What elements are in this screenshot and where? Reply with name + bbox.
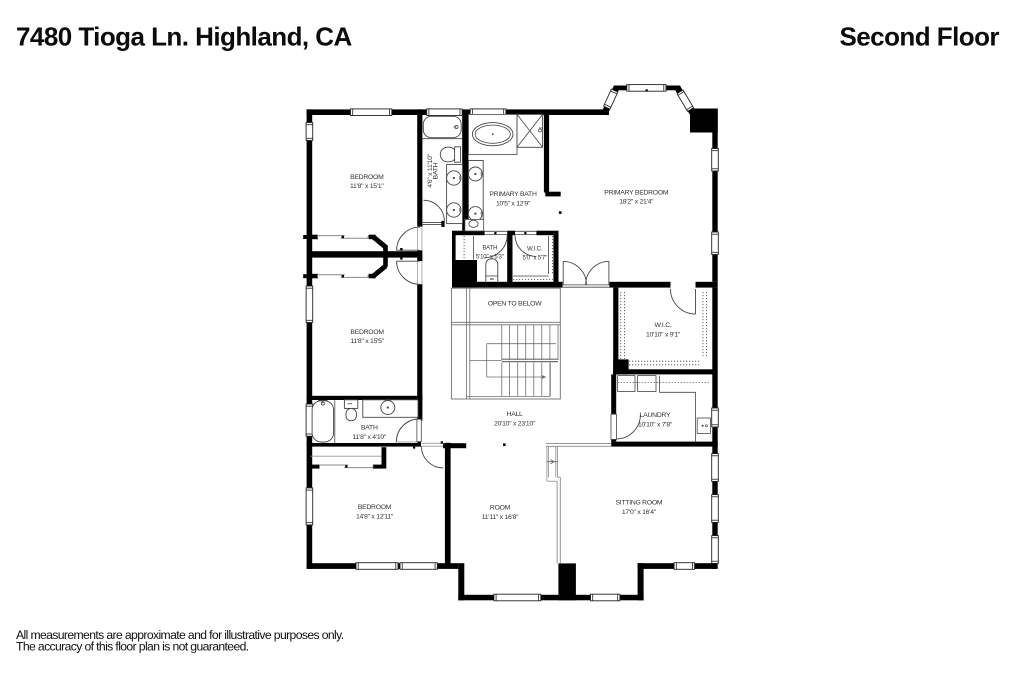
- svg-text:BATH: BATH: [482, 245, 497, 251]
- svg-text:BATH: BATH: [361, 425, 378, 432]
- svg-text:14'8" x 12'11": 14'8" x 12'11": [356, 513, 394, 520]
- svg-text:4'6" x 11'10": 4'6" x 11'10": [427, 153, 434, 187]
- svg-text:11'8" x 4'10": 11'8" x 4'10": [353, 434, 387, 441]
- svg-text:10'10" x 7'8": 10'10" x 7'8": [638, 422, 673, 429]
- svg-text:W.I.C.: W.I.C.: [654, 322, 671, 329]
- svg-text:BEDROOM: BEDROOM: [350, 329, 384, 336]
- svg-text:10'10" x 9'1": 10'10" x 9'1": [646, 331, 681, 338]
- svg-text:ROOM: ROOM: [490, 505, 511, 512]
- svg-text:HALL: HALL: [507, 411, 523, 418]
- svg-text:17'0" x 16'4": 17'0" x 16'4": [622, 509, 657, 516]
- svg-text:Second Floor: Second Floor: [839, 21, 999, 51]
- svg-text:11'11" x 16'8": 11'11" x 16'8": [482, 514, 519, 521]
- svg-text:11'8" x 15'1": 11'8" x 15'1": [350, 183, 384, 190]
- svg-text:W.I.C.: W.I.C.: [527, 246, 543, 252]
- svg-text:BEDROOM: BEDROOM: [350, 174, 384, 181]
- svg-text:BEDROOM: BEDROOM: [358, 504, 392, 511]
- svg-text:5'0" x 5'7": 5'0" x 5'7": [523, 255, 548, 261]
- svg-text:7480 Tioga Ln. Highland, CA: 7480 Tioga Ln. Highland, CA: [16, 21, 352, 51]
- svg-text:10'5" x 12'9": 10'5" x 12'9": [496, 200, 531, 207]
- svg-text:5'10" x 5'3": 5'10" x 5'3": [476, 254, 504, 260]
- svg-text:SITTING ROOM: SITTING ROOM: [615, 500, 662, 507]
- svg-text:LAUNDRY: LAUNDRY: [640, 412, 671, 419]
- svg-text:20'10" x 23'10": 20'10" x 23'10": [494, 420, 536, 427]
- svg-text:11'8" x 15'5": 11'8" x 15'5": [350, 338, 384, 345]
- svg-text:OPEN TO BELOW: OPEN TO BELOW: [488, 301, 542, 308]
- svg-text:18'2" x 21'4": 18'2" x 21'4": [619, 199, 654, 206]
- svg-text:PRIMARY BEDROOM: PRIMARY BEDROOM: [604, 189, 669, 196]
- svg-text:The accuracy of this floor pla: The accuracy of this floor plan is not g…: [16, 640, 249, 654]
- svg-text:PRIMARY BATH: PRIMARY BATH: [489, 191, 537, 198]
